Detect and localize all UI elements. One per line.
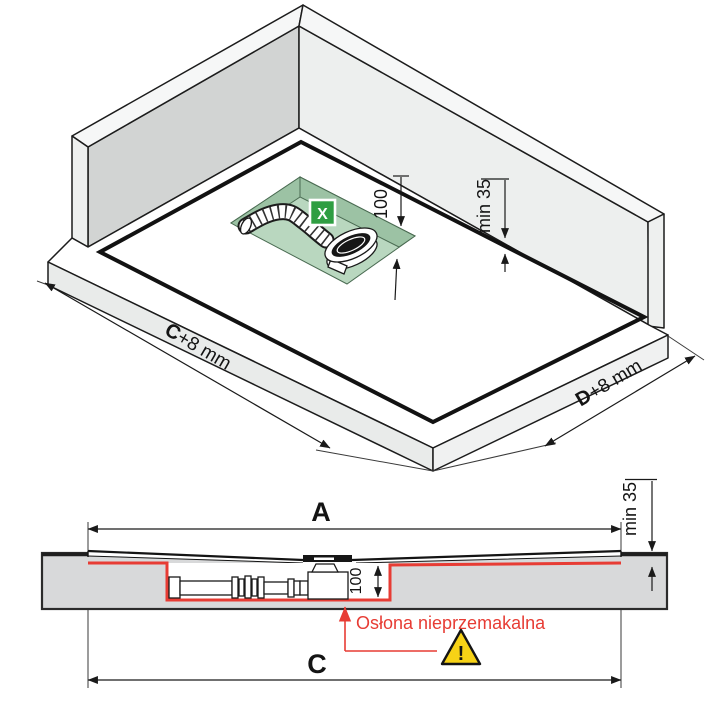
iso-min-gap-label: min 35: [474, 179, 494, 233]
section-dim-c: C: [88, 649, 621, 680]
trap-coupler: [288, 579, 294, 597]
waterproof-callout: Osłona nieprzemakalna !: [345, 607, 546, 665]
trap-ring: [239, 579, 244, 596]
trap-pipe-thin: [264, 582, 288, 594]
warning-triangle-icon: !: [442, 630, 480, 665]
dim-c-label: C: [307, 649, 327, 679]
waterproof-label: Osłona nieprzemakalna: [356, 613, 546, 633]
trap-flange: [169, 577, 180, 598]
x-badge: X: [310, 200, 335, 225]
drain-grate-slot-section: [314, 558, 334, 561]
trap-body: [308, 572, 348, 599]
isometric-view: X 100 min 35 C+8 mm D+8 mm: [37, 5, 704, 471]
trap-ring: [258, 577, 264, 598]
trap-coupler: [294, 581, 300, 595]
trap-ring: [232, 577, 238, 598]
trap-pipe: [180, 581, 232, 595]
left-wall-end-face: [72, 136, 88, 247]
section-dim-a: A: [88, 497, 621, 529]
dim-a-label: A: [311, 497, 331, 527]
extension-line: [668, 336, 704, 360]
trap-ring: [245, 576, 251, 598]
trap-neck: [312, 564, 338, 572]
x-badge-label: X: [317, 206, 328, 223]
installation-diagram: X 100 min 35 C+8 mm D+8 mm: [0, 0, 720, 720]
iso-depth-label: 100: [371, 189, 391, 219]
warning-exclamation: !: [458, 643, 465, 665]
section-min-gap-label: min 35: [620, 482, 640, 536]
cross-section-view: 100 A C min 35 Osłona nieprzemakalna !: [42, 480, 667, 689]
section-depth-label: 100: [348, 568, 365, 595]
trap-ring: [252, 579, 257, 596]
right-wall-end-face: [648, 214, 664, 328]
diagram-page: X 100 min 35 C+8 mm D+8 mm: [0, 0, 720, 720]
trap-step: [300, 581, 308, 595]
